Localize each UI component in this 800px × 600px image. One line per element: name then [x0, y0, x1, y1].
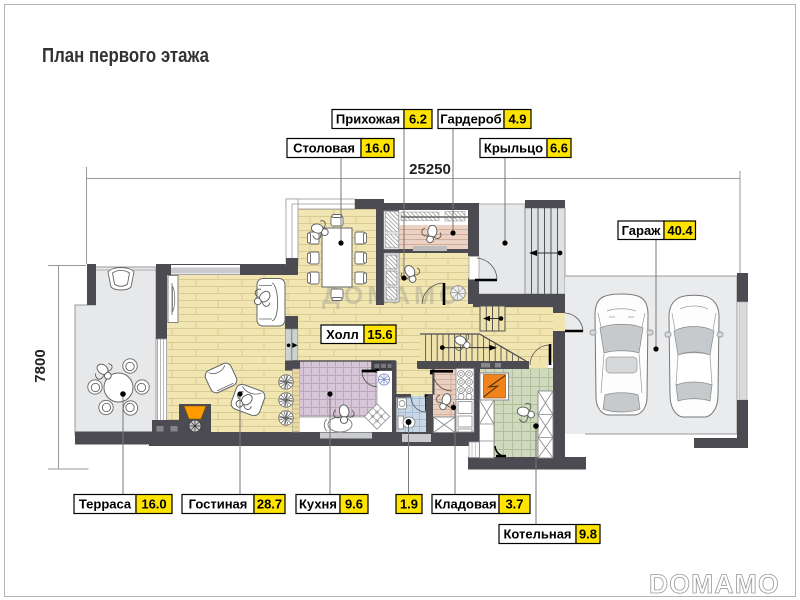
svg-text:План первого этажа: План первого этажа — [42, 44, 209, 67]
svg-text:Столовая: Столовая — [293, 141, 355, 156]
svg-text:16.0: 16.0 — [365, 141, 390, 156]
svg-text:15.6: 15.6 — [367, 327, 392, 342]
svg-text:40.4: 40.4 — [667, 223, 693, 238]
svg-text:Крыльцо: Крыльцо — [484, 141, 543, 156]
svg-text:28.7: 28.7 — [257, 497, 282, 512]
svg-text:25250: 25250 — [409, 161, 451, 178]
svg-text:3.7: 3.7 — [505, 497, 523, 512]
svg-text:4.9: 4.9 — [508, 112, 526, 127]
svg-text:1.9: 1.9 — [400, 497, 418, 512]
svg-text:Прихожая: Прихожая — [336, 112, 400, 127]
svg-text:Кладовая: Кладовая — [434, 497, 496, 512]
svg-text:Гостиная: Гостиная — [189, 497, 248, 512]
svg-text:16.0: 16.0 — [141, 497, 166, 512]
svg-text:9.8: 9.8 — [579, 527, 597, 542]
svg-text:Терраса: Терраса — [79, 497, 132, 512]
svg-text:6.6: 6.6 — [550, 141, 568, 156]
svg-text:Холл: Холл — [326, 327, 359, 342]
svg-text:6.2: 6.2 — [409, 112, 427, 127]
svg-text:Гараж: Гараж — [622, 223, 662, 238]
svg-text:7800: 7800 — [32, 349, 49, 382]
svg-text:Кухня: Кухня — [299, 497, 337, 512]
svg-text:9.6: 9.6 — [345, 497, 363, 512]
svg-text:Гардероб: Гардероб — [440, 112, 501, 127]
svg-text:DOMAMO: DOMAMO — [649, 569, 780, 599]
svg-text:Котельная: Котельная — [503, 527, 571, 542]
